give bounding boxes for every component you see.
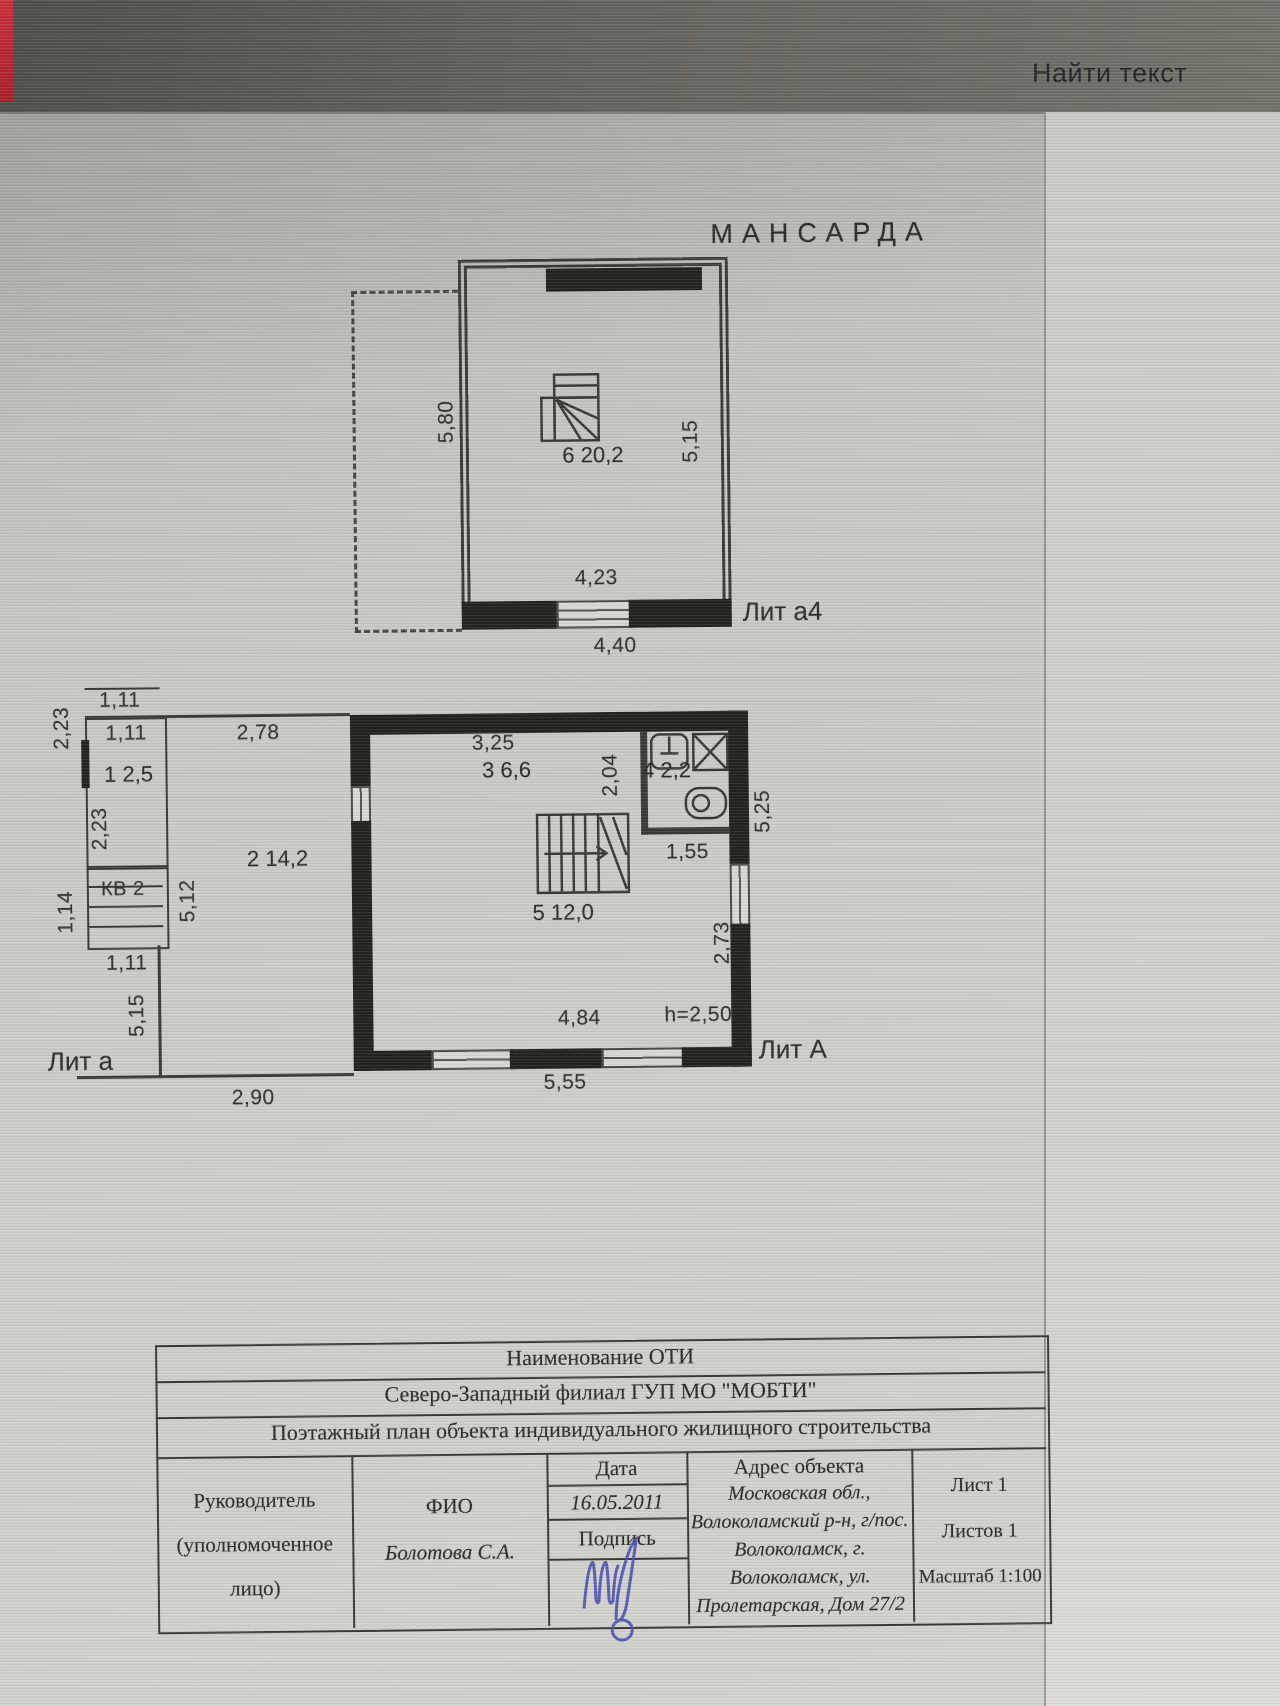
room-label: 4 2,2 bbox=[642, 757, 691, 784]
room-number: 4 bbox=[642, 758, 655, 783]
wall-segment bbox=[629, 599, 732, 628]
date-label: Дата bbox=[546, 1455, 686, 1482]
window bbox=[432, 1049, 514, 1070]
window bbox=[351, 786, 371, 825]
mansarda-window-wall bbox=[546, 267, 702, 292]
address-line: Пролетарская, Дом 27/2 bbox=[688, 1593, 913, 1619]
dim-label: 1,55 bbox=[666, 840, 709, 864]
room-label: 3 6,6 bbox=[482, 757, 531, 784]
room-label: 6 20,2 bbox=[562, 442, 623, 469]
window bbox=[730, 864, 751, 928]
dim-label: 2,23 bbox=[50, 707, 74, 750]
room-label: 1 2,5 bbox=[104, 761, 153, 788]
dim-label: 2,23 bbox=[88, 807, 112, 850]
room-number: 1 bbox=[104, 762, 117, 787]
ceiling-height-label: h=2,50 bbox=[664, 1003, 732, 1028]
dim-label: 5,25 bbox=[751, 790, 775, 833]
lit-a-label: Лит а bbox=[48, 1046, 114, 1078]
kv2-label: КВ 2 bbox=[101, 878, 145, 901]
room-area: 6,6 bbox=[500, 757, 531, 782]
executive-label: (уполномоченное bbox=[157, 1531, 352, 1558]
room-area: 2,5 bbox=[122, 761, 153, 786]
wall-segment bbox=[351, 821, 374, 1071]
room-area: 14,2 bbox=[265, 846, 308, 871]
dim-label: 4,23 bbox=[575, 566, 618, 590]
scale-label: Масштаб 1:100 bbox=[913, 1565, 1048, 1589]
wall-segment bbox=[682, 1047, 752, 1068]
dim-label: 2,78 bbox=[237, 721, 280, 745]
room-area: 2,2 bbox=[660, 757, 691, 782]
dim-label: 2,73 bbox=[710, 921, 734, 964]
shower-icon bbox=[692, 733, 730, 773]
executive-label: Руководитель bbox=[157, 1487, 352, 1514]
dim-label: 1,11 bbox=[105, 721, 147, 745]
wall-segment bbox=[350, 711, 748, 736]
room-number: 2 bbox=[247, 846, 260, 871]
annex-bottom-wall bbox=[77, 1073, 354, 1079]
address-line: Московская обл., bbox=[687, 1481, 912, 1507]
dim-label: 2,04 bbox=[598, 754, 622, 797]
wall-segment bbox=[728, 711, 750, 864]
dim-label: 5,12 bbox=[176, 879, 200, 922]
lit-a4-label: Лит а4 bbox=[743, 596, 823, 628]
room-number: 6 bbox=[562, 442, 575, 467]
wall-segment bbox=[510, 1048, 602, 1069]
room-number: 5 bbox=[532, 900, 545, 925]
mansarda-dashed-annex bbox=[351, 290, 462, 633]
fio-value: Болотова С.А. bbox=[352, 1539, 547, 1566]
window bbox=[602, 1047, 686, 1068]
wall-segment bbox=[354, 1050, 432, 1071]
signature bbox=[569, 1531, 690, 1644]
address-line: Волоколамск, ул. bbox=[688, 1565, 913, 1591]
fio-label: ФИО bbox=[352, 1493, 547, 1520]
dim-label: 1,11 bbox=[106, 951, 148, 975]
mansarda-title: МАНСАРДА bbox=[710, 216, 932, 250]
stairs-icon bbox=[536, 813, 630, 894]
annex-left-wall bbox=[157, 945, 161, 1077]
window bbox=[557, 600, 633, 629]
dim-label: 5,15 bbox=[679, 420, 703, 463]
partition-wall bbox=[641, 827, 729, 835]
wall-segment bbox=[462, 601, 557, 630]
stairs-icon bbox=[540, 373, 601, 442]
window-wall bbox=[81, 740, 90, 788]
sheets-label: Листов 1 bbox=[912, 1519, 1047, 1544]
address-label: Адрес объекта bbox=[686, 1453, 911, 1481]
room-number: 3 bbox=[482, 757, 495, 782]
dim-label: 5,80 bbox=[434, 400, 458, 443]
address-line: Волоколамск, г. bbox=[687, 1537, 912, 1563]
dim-label: 1,14 bbox=[54, 891, 78, 934]
dim-label: 4,84 bbox=[558, 1006, 601, 1030]
dim-label: 2,90 bbox=[232, 1086, 275, 1110]
dim-label: 1,11 bbox=[99, 688, 141, 712]
date-value: 16.05.2011 bbox=[547, 1489, 687, 1516]
dim-label: 3,25 bbox=[472, 731, 515, 755]
room-area: 20,2 bbox=[581, 442, 624, 467]
room-label: 5 12,0 bbox=[532, 899, 593, 926]
wall-segment bbox=[350, 715, 371, 786]
dim-label: 5,55 bbox=[543, 1070, 586, 1094]
address-line: Волоколамский р-н, г/пос. bbox=[687, 1509, 912, 1535]
document-content: МАНСАРДА 6 20,2 5,80 5,15 4,23 4,40 Лит … bbox=[0, 0, 1280, 1706]
lit-A-label: Лит А bbox=[759, 1034, 827, 1066]
executive-label: лицо) bbox=[158, 1575, 353, 1602]
sheet-label: Лист 1 bbox=[912, 1473, 1047, 1498]
screen: Найти текст МАНСАРДА 6 20,2 5,80 5,15 bbox=[0, 0, 1280, 1706]
dim-label: 5,15 bbox=[125, 994, 149, 1037]
room-area: 12,0 bbox=[551, 899, 594, 924]
toilet-icon bbox=[685, 787, 729, 821]
dim-label: 4,40 bbox=[594, 634, 637, 658]
room-label: 2 14,2 bbox=[247, 846, 308, 873]
